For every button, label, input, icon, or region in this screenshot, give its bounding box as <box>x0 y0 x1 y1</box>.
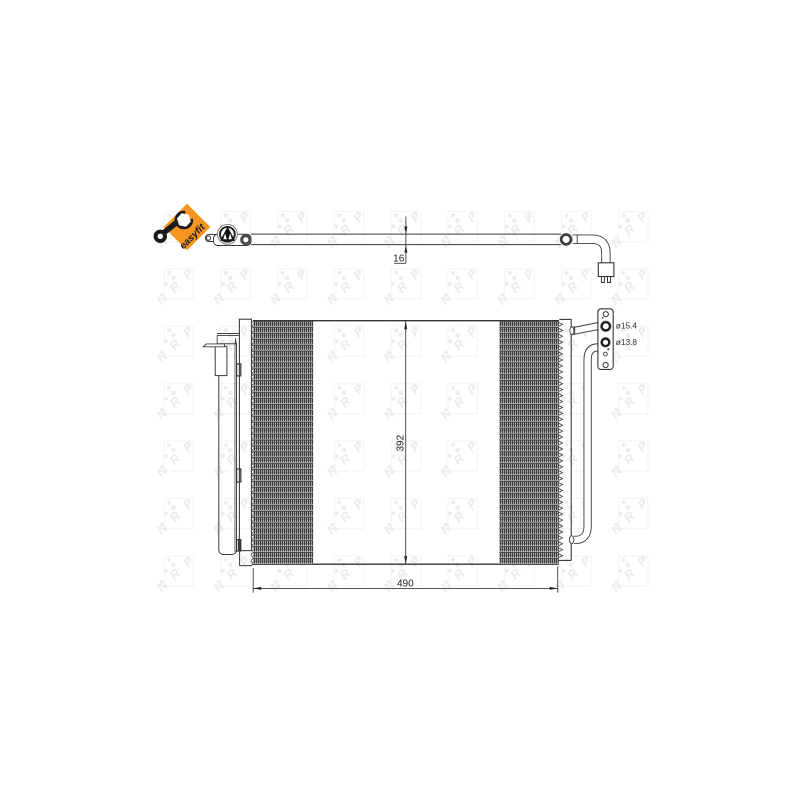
svg-text:392: 392 <box>396 434 407 451</box>
svg-text:ø13.8: ø13.8 <box>616 337 638 347</box>
svg-text:490: 490 <box>397 578 414 589</box>
svg-text:16: 16 <box>393 253 405 264</box>
svg-text:ø15.4: ø15.4 <box>616 320 638 330</box>
